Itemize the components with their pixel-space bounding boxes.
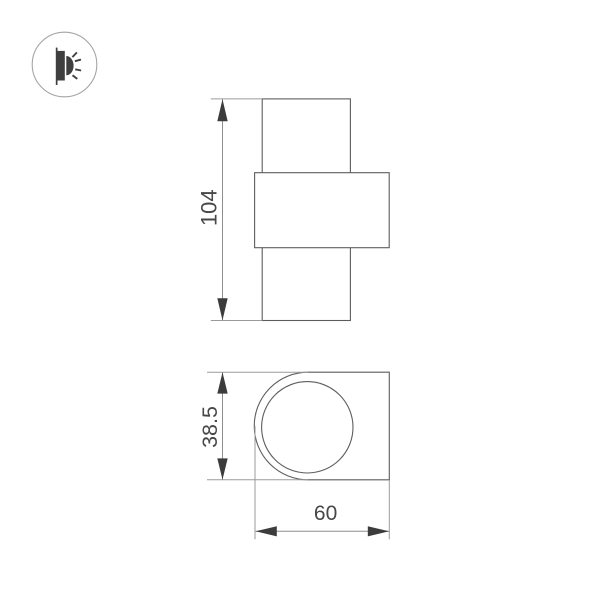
svg-text:60: 60 — [314, 502, 337, 525]
svg-text:38.5: 38.5 — [198, 406, 222, 448]
svg-text:104: 104 — [197, 189, 222, 226]
